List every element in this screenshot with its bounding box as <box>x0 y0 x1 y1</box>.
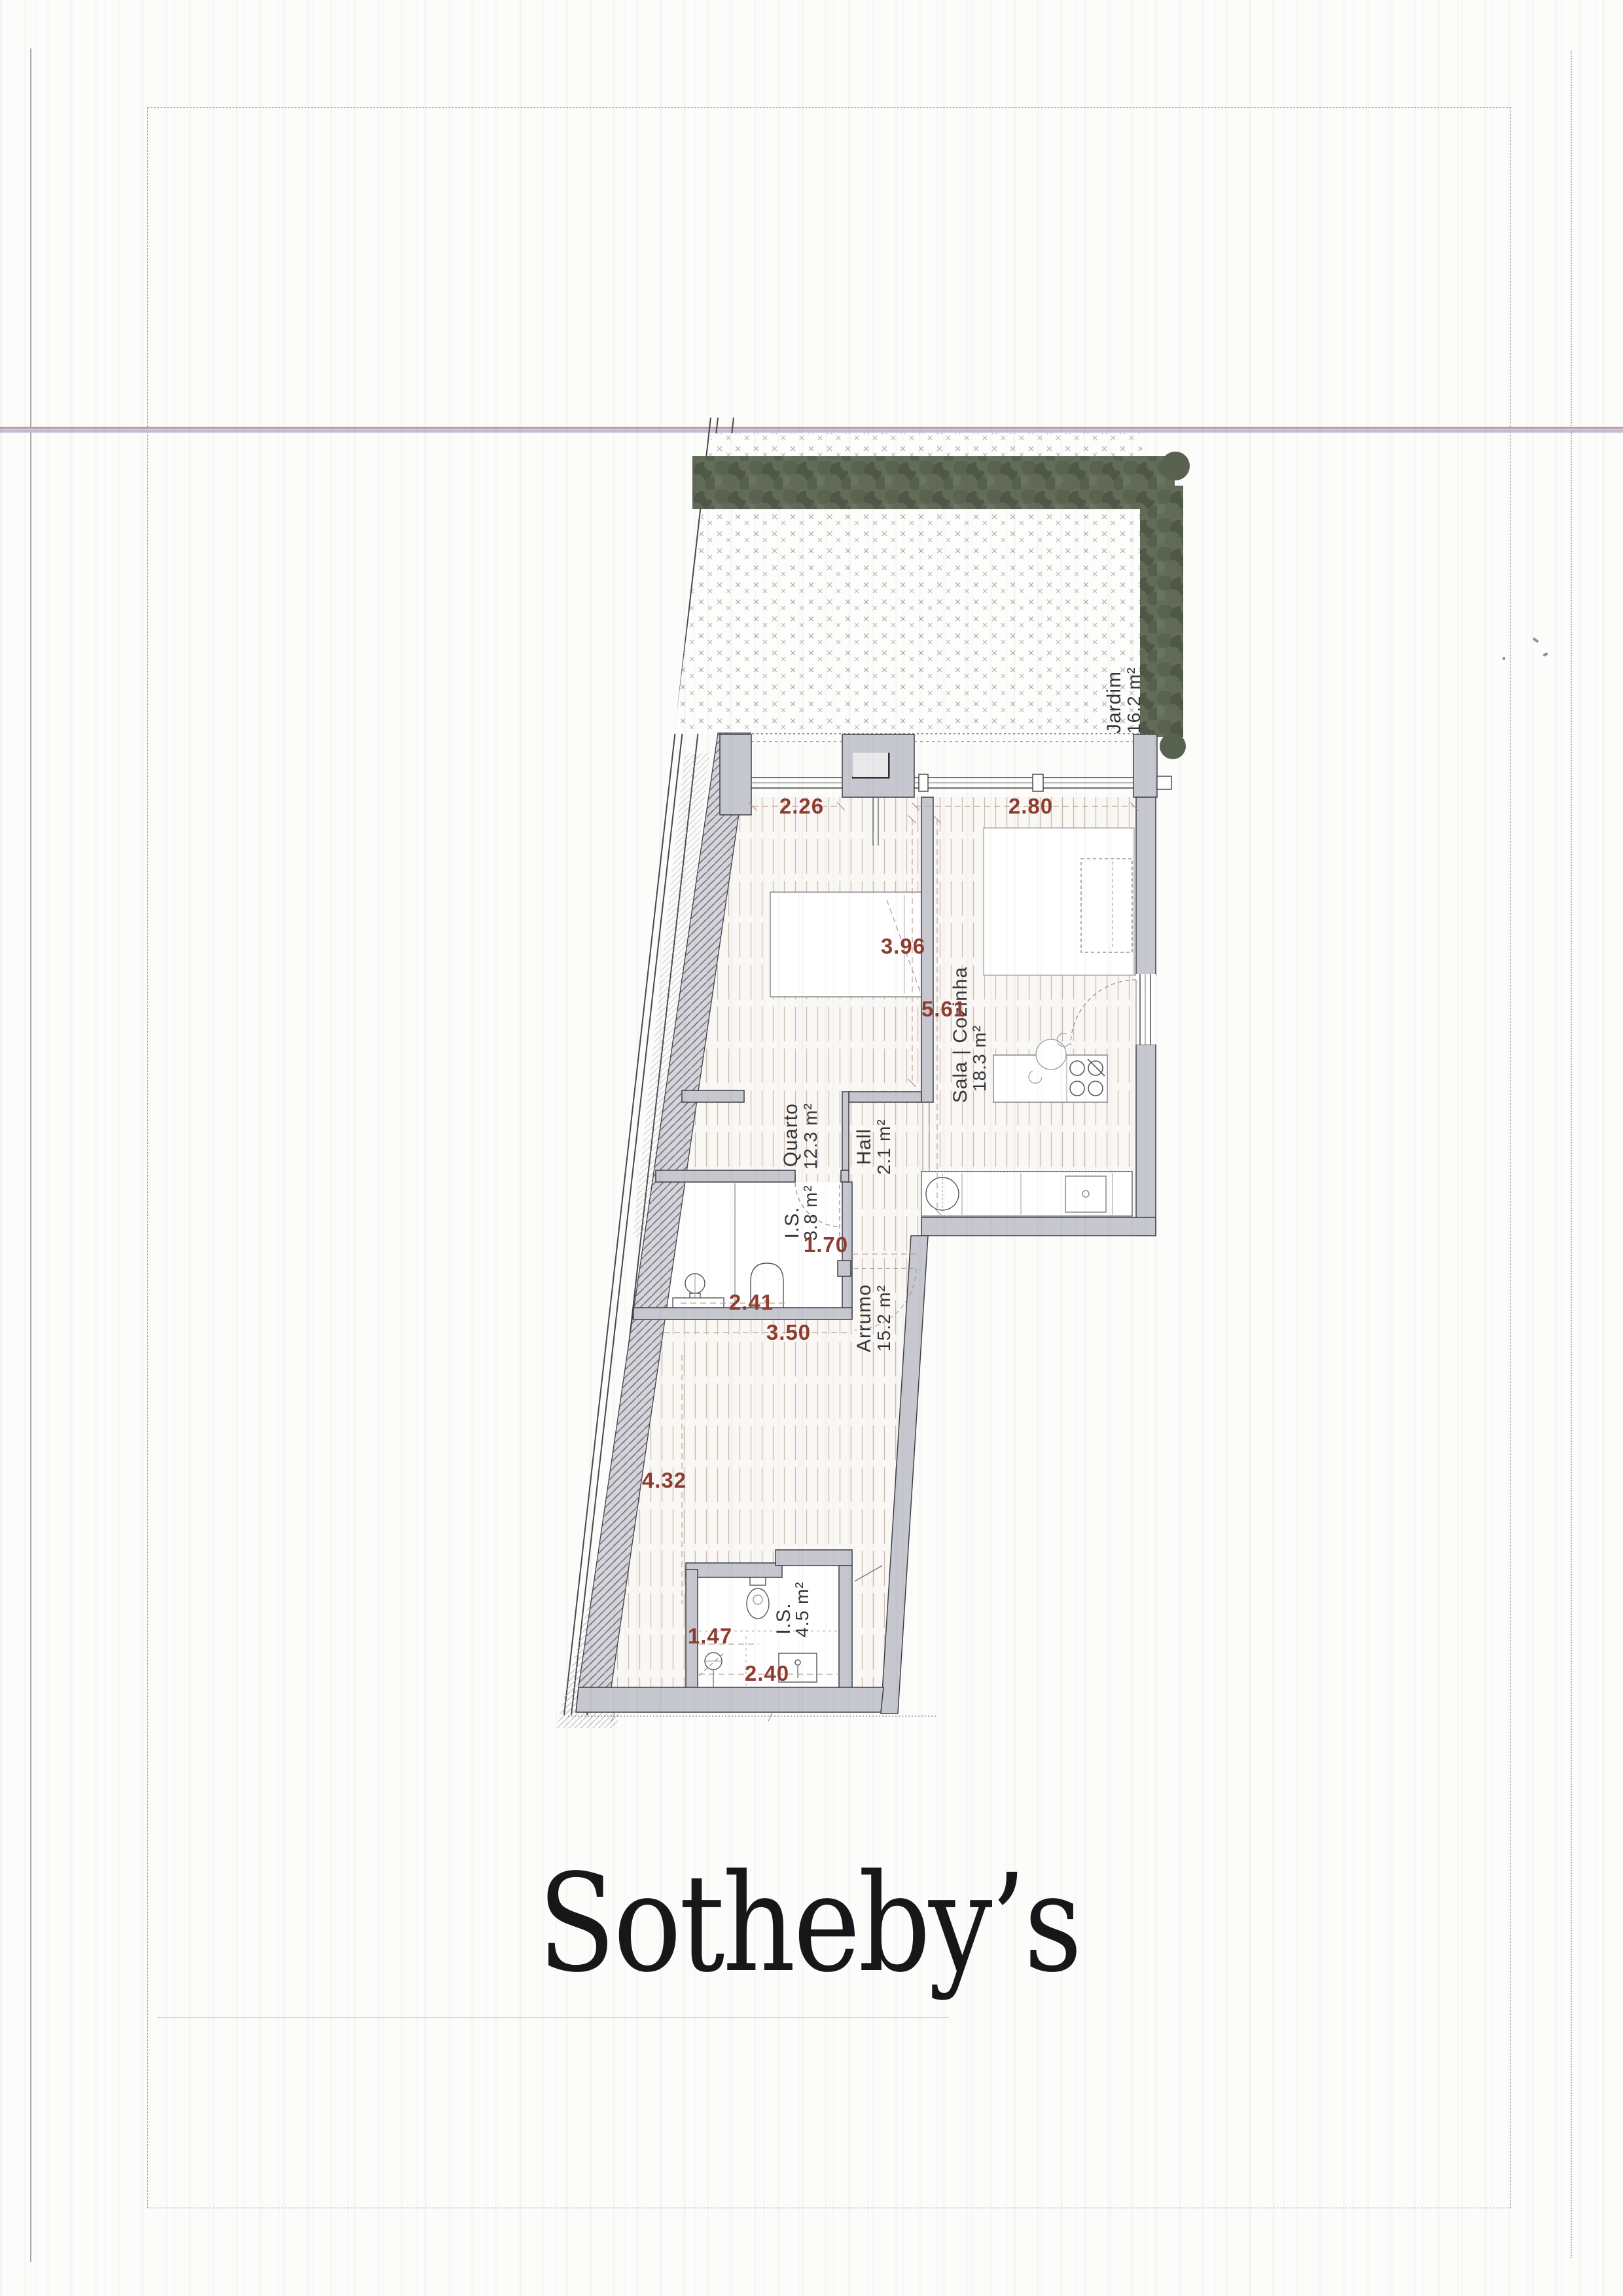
pillar <box>720 734 751 815</box>
pillar <box>1133 734 1157 797</box>
dim-3-96: 3.96 <box>881 934 925 958</box>
room-area-is2: 4.5 m² <box>792 1581 812 1637</box>
sofa <box>984 828 1134 975</box>
room-label-jardim: Jardim <box>1103 671 1125 734</box>
window-glazing <box>914 742 1133 791</box>
room-label-quarto: Quarto <box>780 1103 802 1167</box>
quarto-wall-stub <box>682 1090 744 1102</box>
room-label-sala-cozinha: Sala | Cozinha <box>950 967 971 1103</box>
hedge-right <box>1140 452 1190 759</box>
room-area-quarto: 12.3 m² <box>800 1103 821 1170</box>
dim-2-40: 2.40 <box>745 1661 789 1685</box>
sothebys-logo: Sotheby’s <box>538 1856 1080 1991</box>
toilet-icon <box>747 1588 769 1619</box>
room-label-arrumo: Arrumo <box>853 1284 875 1352</box>
room-area-arrumo: 15.2 m² <box>874 1285 894 1352</box>
dim-2-80: 2.80 <box>1008 794 1053 818</box>
dim-4-32: 4.32 <box>642 1468 687 1492</box>
room-area-jardim: 16.2 m² <box>1124 667 1144 734</box>
hedge-top <box>692 456 1175 509</box>
dim-2-41: 2.41 <box>729 1290 774 1314</box>
scan-speck <box>1503 657 1505 660</box>
dim-3-50: 3.50 <box>766 1320 811 1344</box>
round-table-icon <box>1036 1039 1066 1069</box>
dim-1-70: 1.70 <box>804 1232 848 1257</box>
dim-2-26: 2.26 <box>779 794 824 818</box>
kitchen-counter <box>921 1172 1132 1216</box>
dim-1-47: 1.47 <box>688 1624 732 1648</box>
bottom-exterior-wall <box>576 1687 883 1712</box>
scan-artifact-line <box>157 2017 949 2018</box>
window-glazing <box>751 742 842 788</box>
scanned-floor-plan-page: { "brand": { "logo_text": "Sotheby’s" },… <box>0 0 1623 2296</box>
dim-5-61: 5.61 <box>921 997 966 1021</box>
appliance-icon <box>1065 1176 1106 1212</box>
room-area-hall: 2.1 m² <box>874 1119 894 1174</box>
vanity-icon <box>673 1298 724 1308</box>
room-area-sala-cozinha: 18.3 m² <box>969 1025 990 1092</box>
window-glazing-east <box>1136 974 1156 1045</box>
room-label-hall: Hall <box>853 1128 875 1165</box>
